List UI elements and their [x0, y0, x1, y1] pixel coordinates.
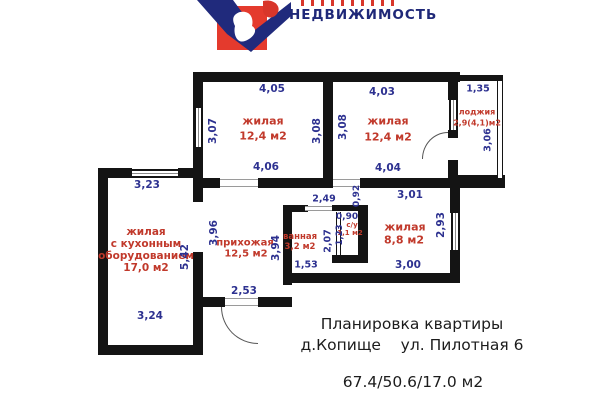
- wall-south-mid: [283, 273, 460, 283]
- dim-bath-bottom: 1,53: [294, 260, 317, 271]
- kitchen-living-label-2: с кухонным: [111, 238, 181, 250]
- wall-kitchen-right-b: [193, 252, 203, 307]
- dim-room1-top: 4,05: [259, 83, 285, 95]
- door-arc-loggia: [422, 132, 448, 159]
- wall-loggia-top: [455, 75, 503, 81]
- hall-area: 12,5 м2: [224, 249, 267, 260]
- loggia-label: лоджия: [459, 108, 496, 117]
- kitchen-living-label-1: жилая: [126, 226, 165, 238]
- dim-hall-left: 3,96: [208, 220, 220, 246]
- dim-bath-top: 2,49: [312, 194, 335, 205]
- footer-areas: 67.4/50.6/17.0 м2: [343, 373, 483, 391]
- window-kitchen-top: [132, 169, 178, 178]
- wall-room2-right-b: [448, 130, 458, 138]
- wc-label: с/у: [346, 221, 357, 229]
- room1-label: жилая: [242, 115, 283, 128]
- room3-label: жилая: [384, 221, 425, 234]
- dim-kitchen-right: 5,42: [179, 244, 191, 270]
- room1-area: 12,4 м2: [239, 130, 287, 143]
- wall-hall-bottom-b: [258, 297, 292, 307]
- window-room1-left: [194, 108, 203, 147]
- dim-wc-left: 1,23: [335, 225, 345, 246]
- wall-mid-c: [360, 178, 448, 188]
- wall-rooms-divider: [323, 82, 333, 178]
- dim-room2-top: 4,03: [369, 86, 395, 98]
- brand-emblem: [193, 0, 297, 54]
- loggia-glazing: [497, 81, 503, 178]
- room3-area: 8,8 м2: [384, 234, 424, 247]
- dim-room3-bottom: 3,00: [395, 259, 421, 271]
- wall-room3-right-b: [450, 250, 460, 283]
- dim-loggia-right: 3,06: [483, 128, 494, 151]
- wall-kitchen-right-a: [193, 178, 203, 202]
- wall-top-outer: [193, 72, 460, 82]
- wall-room3-right-a: [450, 188, 460, 213]
- dim-wc-top: 0,90: [336, 212, 358, 222]
- dim-kitchen-bottom: 3,24: [137, 310, 163, 322]
- hall-label: прихожая: [216, 238, 274, 249]
- door-arc-entrance: [221, 307, 258, 344]
- bathroom-label: ванная: [283, 232, 317, 242]
- footer-address: д.Копище ул. Пилотная 6: [300, 336, 523, 354]
- wall-kitchen-bottom: [98, 345, 203, 355]
- wall-room2-right-c: [448, 160, 458, 178]
- dim-vestibule: 0,92: [352, 185, 362, 207]
- dim-hall-entry: 2,53: [231, 285, 257, 297]
- dim-room2-left: 3,08: [337, 114, 349, 140]
- bathroom-area: 3,2 м2: [285, 242, 316, 252]
- room2-label: жилая: [367, 115, 408, 128]
- wall-kitchen-right-c: [193, 307, 203, 355]
- dim-bath-right: 2,07: [323, 229, 334, 252]
- logo-cropped-text-fragments: [301, 0, 395, 6]
- dim-room1-left: 3,07: [207, 118, 219, 144]
- kitchen-living-area: 17,0 м2: [123, 262, 168, 274]
- dim-room2-bottom: 4,04: [375, 162, 401, 174]
- door-opening-entrance: [225, 298, 258, 306]
- wall-mid-b: [258, 178, 333, 188]
- dim-room1-bottom: 4,06: [253, 161, 279, 173]
- door-opening-bathroom: [305, 206, 332, 211]
- dim-kitchen-top: 3,23: [134, 179, 160, 191]
- room2-area: 12,4 м2: [364, 131, 412, 144]
- footer-title: Планировка квартиры: [321, 315, 504, 333]
- door-opening-room1: [220, 179, 258, 187]
- brand-wordmark: НЕДВИЖИМОСТЬ: [289, 7, 437, 23]
- dim-loggia-top: 1,35: [466, 84, 489, 95]
- loggia-area: 2,9(4,1)м2: [453, 119, 501, 128]
- dim-room1-right: 3,08: [311, 118, 323, 144]
- wall-room2-right-a: [448, 82, 458, 100]
- window-room3-right: [451, 213, 460, 250]
- dim-room3-top: 3,01: [397, 189, 423, 201]
- floorplan-listing-image: НЕДВИЖИМОСТЬ жилая 12,4 м2 жилая 12,4 м2…: [0, 0, 600, 400]
- dim-hall-right: 3,94: [270, 235, 282, 261]
- dim-room3-right: 2,93: [435, 212, 447, 238]
